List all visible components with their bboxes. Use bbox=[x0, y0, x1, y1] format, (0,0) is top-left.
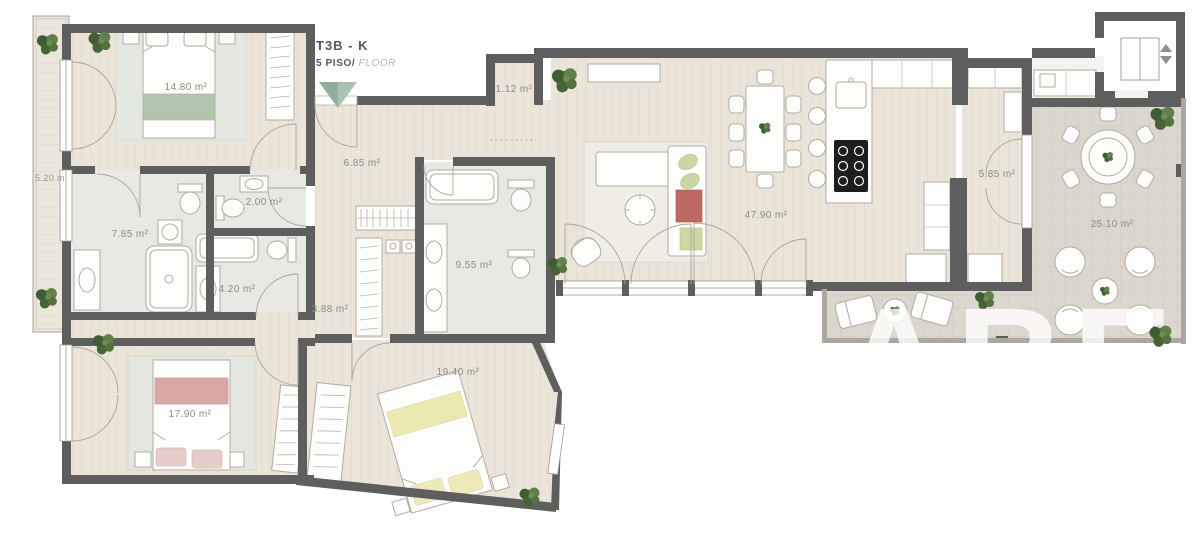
room-label-bedroom-3: 19.40 m² bbox=[437, 367, 480, 378]
tall-cabinet bbox=[924, 182, 950, 250]
floor-plan-drawing: 14.80 m² 6.85 m² 2.00 m² 7.85 m² 4.20 m²… bbox=[0, 0, 1200, 550]
room-label-wc: 2.00 m² bbox=[246, 197, 283, 208]
wardrobe-icon bbox=[266, 30, 294, 120]
floor-plan-page: 14.80 m² 6.85 m² 2.00 m² 7.85 m² 4.20 m²… bbox=[0, 0, 1200, 550]
room-label-bedroom-2: 17.90 m² bbox=[169, 409, 212, 420]
watermark: ABE bbox=[840, 276, 1181, 444]
coffee-table bbox=[625, 195, 655, 225]
terrace-railing bbox=[822, 289, 827, 343]
room-label-bathroom-2: 4.20 m² bbox=[219, 284, 256, 295]
room-label-balcony: 5.20 m bbox=[35, 173, 65, 183]
bar-stool bbox=[809, 108, 826, 125]
room-label-bathroom-3: 9.55 m² bbox=[456, 260, 493, 271]
room-label-storage: 1.12 m² bbox=[496, 84, 533, 95]
terrace-railing bbox=[1181, 98, 1186, 344]
svg-text:5 PISO/ FLOOR: 5 PISO/ FLOOR bbox=[316, 58, 396, 69]
room-storage-niche bbox=[488, 58, 538, 140]
room-label-bedroom-1: 14.80 m² bbox=[165, 82, 208, 93]
room-label-terrace: 25.10 m² bbox=[1091, 219, 1134, 230]
kitchen-counter bbox=[872, 60, 966, 88]
room-label-pantry: 5.85 m² bbox=[979, 169, 1016, 180]
unit-title: T3B - K bbox=[316, 38, 369, 53]
bar-stool bbox=[809, 140, 826, 157]
room-label-corridor: 3.88 m² bbox=[312, 304, 349, 315]
bar-stool bbox=[809, 78, 826, 95]
floor-label-suffix: FLOOR bbox=[359, 58, 396, 69]
room-label-living: 47.90 m² bbox=[745, 210, 788, 221]
bar-stool bbox=[809, 171, 826, 188]
room-label-bathroom-1: 7.85 m² bbox=[112, 229, 149, 240]
tv-console bbox=[588, 64, 660, 82]
room-label-hall: 6.85 m² bbox=[344, 158, 381, 169]
floor-label: 5 PISO/ bbox=[316, 58, 355, 69]
